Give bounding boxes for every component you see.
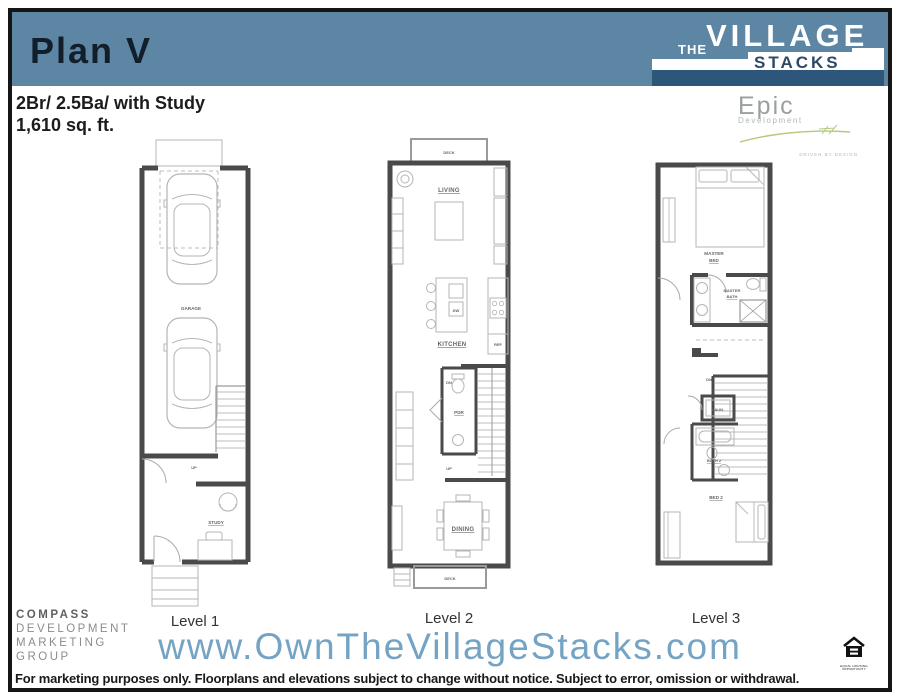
armchair-icon <box>397 171 413 187</box>
disclaimer-text: For marketing purposes only. Floorplans … <box>15 671 887 686</box>
desk-icon <box>198 532 232 560</box>
epic-name: Epic <box>738 94 858 118</box>
dresser <box>663 198 675 242</box>
dining-label: DINING <box>452 527 475 533</box>
laundry-label: LAUN. <box>712 407 724 412</box>
powder-room <box>430 368 476 454</box>
floorplan-level-3: MASTER BED MASTER BATH DN <box>652 150 780 602</box>
garage-label: GARAGE <box>181 306 201 311</box>
stairs <box>478 368 506 476</box>
bed-icon <box>696 167 764 247</box>
bath2-label: BATH 2 <box>707 458 722 463</box>
equal-housing-logo: EQUAL HOUSING OPPORTUNITY <box>840 636 868 671</box>
entry-door-arc <box>154 536 180 562</box>
dw-label: DW <box>453 308 460 313</box>
up-label: UP <box>446 466 452 471</box>
kitchen-island <box>427 278 468 332</box>
bed2-closet <box>664 512 680 558</box>
hall-closet <box>396 392 413 480</box>
logo-village-text: VILLAGE <box>706 18 868 54</box>
deck-bottom-label: DECK <box>444 576 455 581</box>
level-2-caption: Level 2 <box>385 610 513 627</box>
shower-icon <box>740 300 766 322</box>
stairs <box>216 386 246 452</box>
bed-icon <box>736 502 768 542</box>
interior-walls <box>142 456 248 484</box>
study-chair-icon <box>219 493 237 511</box>
deck-top-label: DECK <box>443 150 454 155</box>
toilet-icon <box>747 278 767 291</box>
sofa-icon <box>392 198 403 264</box>
master-bed-label-2: BED <box>709 258 719 263</box>
dn-label: DN <box>706 377 712 382</box>
specs-sqft: 1,610 sq. ft. <box>16 114 205 136</box>
coffee-table <box>435 202 463 240</box>
door-arc <box>142 459 166 483</box>
epic-development-logo: Epic Development DRIVEN BY DESIGN <box>738 94 858 157</box>
page-title: Plan V <box>30 30 152 72</box>
up-label: UP <box>191 465 197 470</box>
walk-in-closet <box>692 340 766 357</box>
exterior-walls <box>142 168 248 562</box>
dining-table <box>437 495 489 557</box>
epic-signature-swoosh-icon <box>738 125 858 145</box>
master-bath-label-1: MASTER <box>724 288 741 293</box>
kitchen-label: KITCHEN <box>438 342 467 348</box>
porch-steps <box>152 566 198 606</box>
compass-line-4: GROUP <box>16 650 130 664</box>
flyer-page: Plan V THE VILLAGE STACKS 2Br/ 2.5Ba/ wi… <box>0 0 900 700</box>
driveway <box>156 140 222 166</box>
buffet <box>392 506 402 550</box>
compass-line-3: MARKETING <box>16 636 130 650</box>
compass-line-2: DEVELOPMENT <box>16 622 130 636</box>
header-band: Plan V THE VILLAGE STACKS <box>12 12 888 86</box>
epic-division: Development <box>738 116 858 125</box>
study-label: STUDY <box>208 520 224 525</box>
range-icon <box>490 298 506 318</box>
logo-stacks-text: STACKS <box>754 53 841 73</box>
bed2-label: BED 2 <box>709 495 723 500</box>
deck-bottom <box>394 566 486 588</box>
floorplan-level-2: DECK LIVING <box>385 136 513 594</box>
master-bed-label-1: MASTER <box>704 251 724 256</box>
village-stacks-logo: THE VILLAGE STACKS <box>648 12 888 86</box>
logo-step-band-left <box>652 59 748 70</box>
logo-step-band-right <box>852 48 884 58</box>
car-icon <box>164 174 220 284</box>
specs-bed-bath: 2Br/ 2.5Ba/ with Study <box>16 92 205 114</box>
equal-housing-icon <box>841 636 867 660</box>
car-icon <box>164 318 220 428</box>
living-label: LIVING <box>438 188 460 194</box>
plan-specs: 2Br/ 2.5Ba/ with Study 1,610 sq. ft. <box>16 92 205 136</box>
website-link[interactable]: www.OwnTheVillageStacks.com <box>140 626 760 668</box>
dn-label: DN <box>446 380 452 385</box>
floorplan-level-1: GARAGE UP STUDY <box>132 138 258 612</box>
level-3-caption: Level 3 <box>652 610 780 627</box>
pdr-label: PDR <box>454 410 464 415</box>
ref-label: REF <box>494 342 503 347</box>
compass-logo: COMPASS DEVELOPMENT MARKETING GROUP <box>16 608 130 664</box>
master-bath-label-2: BATH <box>727 294 738 299</box>
vanity-double-sink <box>694 278 710 322</box>
logo-the-text: THE <box>678 42 707 57</box>
compass-line-1: COMPASS <box>16 608 130 622</box>
media-shelves <box>494 168 507 264</box>
